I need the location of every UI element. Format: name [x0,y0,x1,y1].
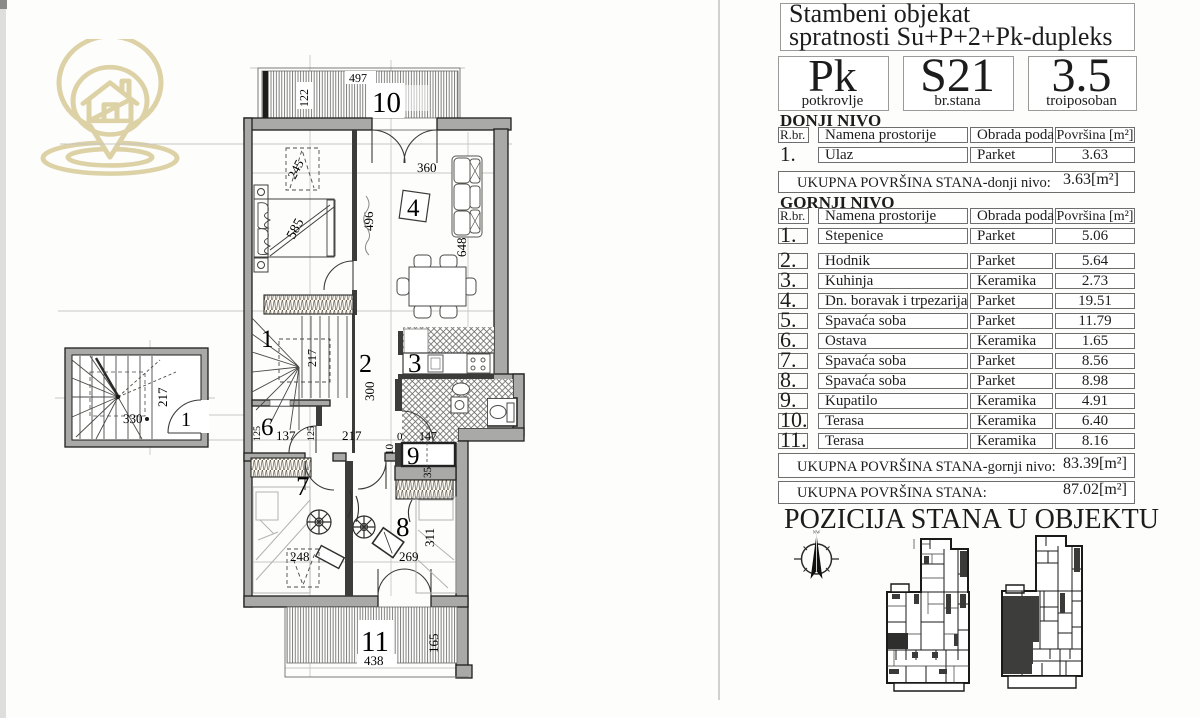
svg-text:1: 1 [181,409,191,431]
svg-text:217: 217 [155,387,170,407]
svg-text:269: 269 [399,549,419,564]
svg-text:438: 438 [364,653,384,668]
svg-text:125: 125 [306,426,317,441]
svg-text:360: 360 [417,160,437,175]
svg-text:497: 497 [349,71,367,85]
svg-text:311: 311 [422,528,437,547]
svg-text:125: 125 [252,426,263,441]
svg-text:330: 330 [123,411,143,426]
svg-text:2: 2 [359,349,372,378]
svg-text:10: 10 [372,87,401,119]
svg-text:7: 7 [296,471,310,501]
svg-text:217: 217 [342,428,362,443]
svg-text:10: 10 [384,444,396,456]
svg-text:248: 248 [290,549,310,564]
svg-text:585: 585 [284,216,307,242]
svg-text:147: 147 [419,429,437,443]
svg-text:NW: NW [813,530,821,535]
svg-text:245: 245 [284,157,306,181]
svg-text:300: 300 [362,382,377,402]
svg-text:648: 648 [454,238,469,258]
svg-text:4: 4 [407,195,420,222]
svg-text:217: 217 [305,349,319,367]
svg-text:137: 137 [276,428,296,443]
svg-text:1: 1 [261,326,274,353]
svg-text:9: 9 [407,443,420,470]
svg-text:35: 35 [422,467,434,479]
svg-text:165: 165 [426,634,441,654]
svg-text:3: 3 [408,348,422,378]
svg-text:496: 496 [361,211,376,231]
svg-text:0: 0 [397,431,403,443]
svg-text:8: 8 [396,512,410,542]
svg-text:122: 122 [297,89,311,107]
